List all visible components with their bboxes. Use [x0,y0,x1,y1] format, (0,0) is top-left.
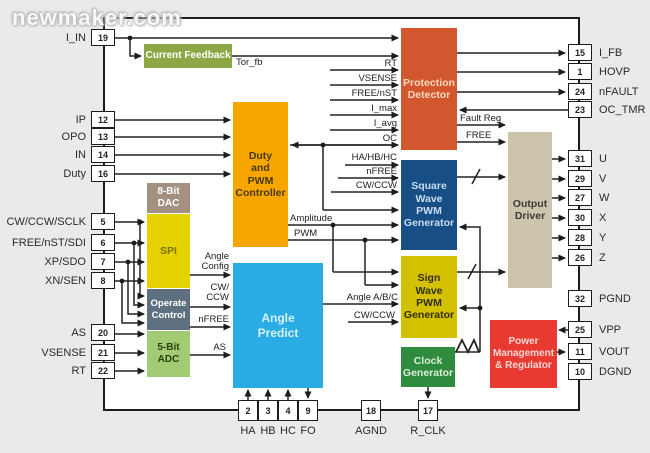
pin-number-box: 11 [568,343,592,360]
block-operate-control: Operate Control [147,289,190,330]
pin-label: AGND [346,425,396,437]
pin-label: OC_TMR [599,104,645,116]
pin-duty: Duty16 [0,165,115,182]
pin-number-box: 16 [91,165,115,182]
pin-label: IN [75,149,86,161]
pin-label: VOUT [599,346,630,358]
pin-label: HOVP [599,66,630,78]
pin-number-box: 24 [568,83,592,100]
pin-label: XN/SEN [45,275,86,287]
pin-vpp: 25VPP [568,321,621,338]
pin-rt: RT22 [0,362,115,379]
pin-number-box: 32 [568,290,592,307]
signal-cw-ccw-sq: CW/CCW [330,181,397,191]
pin-label: I_IN [66,32,86,44]
pin-free-nst-sdi: FREE/nST/SDI6 [0,234,115,251]
block-8bit-dac: 8-Bit DAC [147,183,190,213]
signal-cw-ccw-ap: CW/ CCW [192,283,229,304]
pin-label: IP [76,114,86,126]
pin-label: R_CLK [403,425,453,437]
pin-number-box: 12 [91,111,115,128]
pin-number-box: 23 [568,101,592,118]
signal-free-nst: FREE/nST [330,89,397,99]
block-current-feedback: Current Feedback [144,44,232,68]
signal-i-max: I_max [330,104,397,114]
pin-vout: 11VOUT [568,343,630,360]
pin-nfault: 24nFAULT [568,83,639,100]
pin-dgnd: 10DGND [568,363,631,380]
pin-number-box: 20 [91,324,115,341]
pin-ha: 2 [238,400,258,421]
signal-ha-hb-hc: HA/HB/HC [330,153,397,163]
pin-label: VSENSE [41,347,86,359]
pin-label: FO [283,425,333,437]
pin-label: W [599,192,609,204]
pin-label: DGND [599,366,631,378]
pin-number-box: 30 [568,209,592,226]
pin-label: OPO [62,131,86,143]
pin-label: AS [71,327,86,339]
pin-number-box: 1 [568,63,592,80]
signal-amplitude: Amplitude [290,214,332,224]
pin-label: XP/SDO [44,256,86,268]
block-protection-detector: Protection Detector [401,28,457,150]
block-spi: SPI [147,214,190,288]
pin-number-box: 25 [568,321,592,338]
pin-label: V [599,173,606,185]
watermark: newmaker.com [12,5,182,31]
pin-xp-sdo: XP/SDO7 [0,253,115,270]
pin-number-box: 6 [91,234,115,251]
pin-as: AS20 [0,324,115,341]
pin-number-box: 27 [568,189,592,206]
pin-opo: OPO13 [0,128,115,145]
pin-label: X [599,212,606,224]
block-angle-predict: Angle Predict [233,263,323,388]
pin-i-fb: 15I_FB [568,44,622,61]
pin-label: nFAULT [599,86,639,98]
pin-label: I_FB [599,47,622,59]
pin-number-box: 21 [91,344,115,361]
signal-angle-abc: Angle A/B/C [336,293,398,303]
pin-number-box: 14 [91,146,115,163]
pin-oc-tmr: 23OC_TMR [568,101,645,118]
block-power-management: Power Management & Regulator [490,320,557,388]
pin-pgnd: 32PGND [568,290,631,307]
pin-label: CW/CCW/SCLK [7,216,86,228]
pin-label: FREE/nST/SDI [12,237,86,249]
pin-number-box: 5 [91,213,115,230]
pin-hovp: 1HOVP [568,63,630,80]
block-duty-pwm-controller: Duty and PWM Controller [233,102,288,247]
pin-label: Y [599,232,606,244]
block-diagram: newmaker.com Current Feedback Duty and P… [0,0,650,453]
pin-v: 29V [568,170,606,187]
pin-z: 26Z [568,249,606,266]
signal-nfree-sq: nFREE [330,167,397,177]
block-sign-wave-pwm-generator: Sign Wave PWM Generator [401,256,457,338]
pin-number-box: 29 [568,170,592,187]
pin-number-box: 7 [91,253,115,270]
pin-number-box: 8 [91,272,115,289]
pin-number-box: 31 [568,150,592,167]
signal-oc: OC [330,134,397,144]
block-square-wave-pwm-generator: Square Wave PWM Generator [401,160,457,250]
pin-label: U [599,153,607,165]
pin-y: 28Y [568,229,606,246]
signal-cw-ccw-sign: CW/CCW [348,311,395,321]
pin-number-box: 19 [91,29,115,46]
signal-angle-config: Angle Config [192,252,229,273]
signal-nfree-ap: nFREE [192,315,229,325]
pin-vsense: VSENSE21 [0,344,115,361]
pin-hb: 3 [258,400,278,421]
pin-xn-sen: XN/SEN8 [0,272,115,289]
pin-number-box: 28 [568,229,592,246]
pin-label: VPP [599,324,621,336]
signal-tor-fb: Tor_fb [236,58,262,68]
pin-label: PGND [599,293,631,305]
pin-fo: 9 [298,400,318,421]
pin-number-box: 10 [568,363,592,380]
pin-w: 27W [568,189,609,206]
pin-cw-ccw-sclk: CW/CCW/SCLK5 [0,213,115,230]
pin-x: 30X [568,209,606,226]
pin-number-box: 15 [568,44,592,61]
pin-u: 31U [568,150,607,167]
pin-hc: 4 [278,400,298,421]
pin-i-in: I_IN19 [0,29,115,46]
pin-ip: IP12 [0,111,115,128]
pin-in: IN14 [0,146,115,163]
signal-vsense: VSENSE [330,74,397,84]
pin-number-box: 13 [91,128,115,145]
signal-as: AS [192,343,226,353]
block-output-driver: Output Driver [508,132,552,288]
signal-pwm: PWM [294,229,317,239]
block-5bit-adc: 5-Bit ADC [147,331,190,377]
signal-rt: RT [330,59,397,69]
signal-i-avg: I_avg [330,119,397,129]
pin-r-clk: 17 [418,400,438,421]
pin-label: Z [599,252,606,264]
signal-fault-reg: Fault Reg [460,114,501,124]
signal-free: FREE [466,131,491,141]
block-clock-generator: Clock Generator [401,347,455,387]
pin-label: Duty [63,168,86,180]
pin-label: RT [72,365,86,377]
pin-agnd: 18 [361,400,381,421]
pin-number-box: 22 [91,362,115,379]
pin-number-box: 26 [568,249,592,266]
